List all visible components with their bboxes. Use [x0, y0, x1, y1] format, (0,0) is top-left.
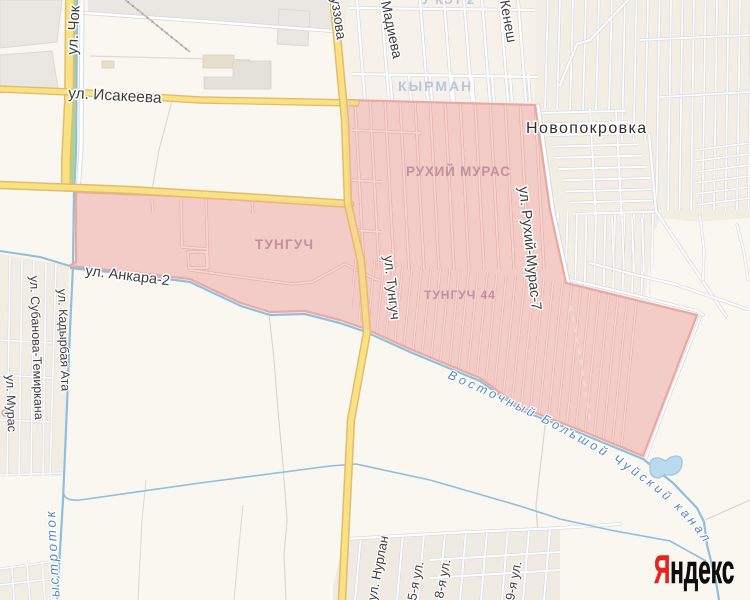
svg-text:Новопокровка: Новопокровка — [526, 120, 648, 137]
svg-text:ул. Мурас: ул. Мурас — [3, 375, 19, 432]
svg-text:У КЭТ 2: У КЭТ 2 — [422, 0, 475, 7]
svg-text:ТУНГУЧ 44: ТУНГУЧ 44 — [424, 288, 496, 302]
svg-text:ул. Чок: ул. Чок — [64, 5, 84, 55]
svg-text:Яндекс: Яндекс — [654, 547, 734, 591]
svg-text:ТУНГУЧ: ТУНГУЧ — [255, 237, 314, 252]
svg-text:РУХИЙ МУРАС: РУХИЙ МУРАС — [406, 164, 511, 179]
svg-text:КЫРМАН: КЫРМАН — [398, 78, 473, 94]
